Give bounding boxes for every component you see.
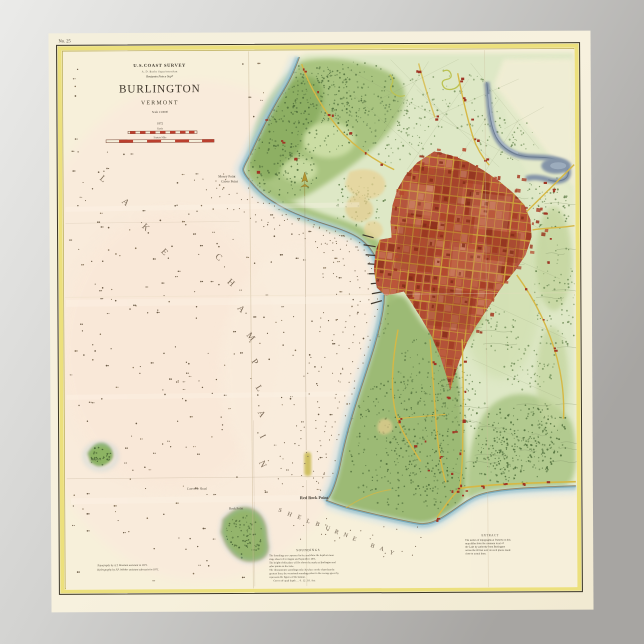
svg-text:Mosey Point: Mosey Point	[218, 174, 235, 178]
svg-text:Curves of equal depth . . . 6: Curves of equal depth . . . 6 . 12 . 18 …	[273, 579, 315, 582]
svg-text:Juniper I.: Juniper I.	[91, 458, 102, 461]
svg-text:VERMONT: VERMONT	[141, 100, 179, 106]
svg-text:Red Rock Point: Red Rock Point	[300, 495, 329, 500]
svg-text:BURLINGTON: BURLINGTON	[119, 83, 201, 95]
svg-text:Benjamin Peirce Supdt: Benjamin Peirce Supdt	[146, 74, 173, 78]
svg-text:close to actual lines.: close to actual lines.	[465, 552, 486, 555]
svg-text:Grove Point: Grove Point	[221, 179, 238, 183]
svg-text:Hydrography by F.P. Webber ass: Hydrography by F.P. Webber assistant sub…	[96, 568, 159, 571]
svg-text:The height of this plane will: The height of this plane will be shown b…	[269, 561, 336, 564]
svg-text:No. 25: No. 25	[59, 38, 72, 43]
svg-text:1872: 1872	[157, 121, 164, 125]
svg-text:EXTRACT: EXTRACT	[481, 533, 498, 537]
svg-text:Statute Mile: Statute Mile	[154, 136, 168, 139]
svg-text:Converse Shoal: Converse Shoal	[187, 487, 207, 491]
svg-text:Rock Point: Rock Point	[229, 506, 243, 510]
svg-text:SOUNDINGS: SOUNDINGS	[296, 548, 320, 552]
svg-text:Scale 1:10000: Scale 1:10000	[152, 111, 169, 114]
svg-text:Topography by A.T. Mosman assi: Topography by A.T. Mosman assistant in 1…	[97, 564, 148, 567]
svg-text:U.S.COAST SURVEY: U.S.COAST SURVEY	[133, 63, 186, 68]
svg-text:Yards: Yards	[157, 127, 163, 130]
svg-text:A. D. Bache Superintendent: A. D. Bache Superintendent	[142, 70, 178, 73]
